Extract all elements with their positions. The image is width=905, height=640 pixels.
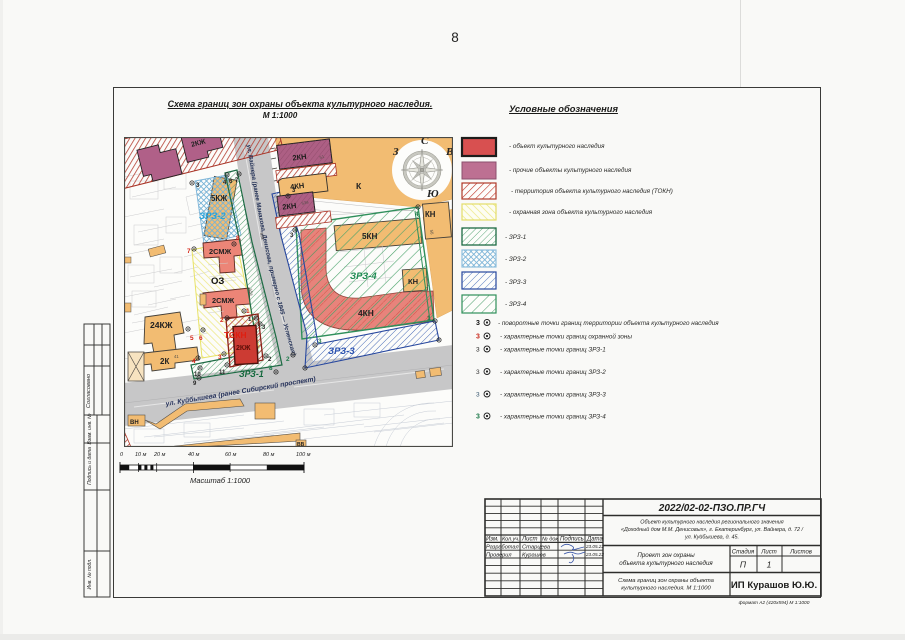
svg-text:8: 8	[236, 235, 240, 242]
svg-text:Ю: Ю	[426, 188, 439, 200]
svg-text:- характерные точки границ ЗР: - характерные точки границ ЗРЗ-2	[500, 369, 606, 376]
svg-text:23.05.22: 23.05.22	[585, 552, 604, 557]
svg-text:Кол.уч.: Кол.уч.	[502, 537, 520, 543]
svg-text:Разработал: Разработал	[486, 545, 519, 551]
svg-text:3: 3	[476, 392, 480, 399]
svg-text:ВН: ВН	[130, 420, 139, 426]
svg-text:2022/02-02-ПЗО.ПР.ГЧ: 2022/02-02-ПЗО.ПР.ГЧ	[658, 503, 766, 514]
svg-text:Лист: Лист	[521, 537, 537, 543]
svg-text:7: 7	[187, 248, 191, 255]
svg-text:- характерные точки границ ЗР: - характерные точки границ ЗРЗ-4	[500, 414, 606, 421]
svg-text:3: 3	[476, 334, 480, 341]
svg-text:2К: 2К	[160, 357, 169, 366]
svg-text:2: 2	[286, 356, 290, 363]
svg-text:24КЖ: 24КЖ	[150, 320, 173, 330]
svg-text:3: 3	[476, 347, 480, 354]
svg-text:формат А2 (420х594) М 1:1000: формат А2 (420х594) М 1:1000	[739, 600, 810, 606]
svg-text:3: 3	[318, 338, 322, 345]
svg-text:3: 3	[476, 414, 480, 421]
svg-text:3: 3	[218, 354, 222, 361]
svg-text:4КН: 4КН	[358, 308, 374, 318]
svg-text:КН: КН	[408, 277, 418, 286]
svg-text:культурного наследия. М 1:1000: культурного наследия. М 1:1000	[621, 586, 711, 592]
svg-text:1: 1	[427, 315, 431, 322]
svg-text:10: 10	[194, 372, 201, 378]
svg-text:Проект зон охраны: Проект зон охраны	[637, 552, 695, 559]
svg-text:В: В	[445, 146, 453, 158]
svg-text:1: 1	[246, 308, 250, 315]
svg-text:ЗРЗ-4: ЗРЗ-4	[350, 271, 377, 282]
svg-text:3: 3	[476, 369, 480, 376]
svg-text:Дата: Дата	[586, 537, 603, 543]
svg-text:ОЗ: ОЗ	[211, 276, 224, 287]
svg-text:3: 3	[476, 320, 480, 327]
svg-text:- характерные точки границ ох: - характерные точки границ охранной зоны	[500, 333, 632, 341]
svg-text:ИП Курашов Ю.Ю.: ИП Курашов Ю.Ю.	[731, 580, 817, 591]
svg-text:К: К	[356, 181, 362, 191]
svg-text:ЗРЗ-2: ЗРЗ-2	[199, 211, 226, 222]
svg-text:- характерные точки границ ЗР: - характерные точки границ ЗРЗ-3	[500, 392, 606, 399]
svg-text:Курашов: Курашов	[522, 552, 546, 558]
svg-text:4: 4	[415, 211, 419, 218]
svg-text:1: 1	[767, 560, 772, 570]
svg-text:5КН: 5КН	[362, 232, 378, 241]
svg-text:Подпись и дата: Подпись и дата	[87, 447, 93, 485]
svg-text:Инв. № подл.: Инв. № подл.	[87, 558, 93, 589]
svg-text:- характерные точки границ ЗР: - характерные точки границ ЗРЗ-1	[500, 347, 606, 354]
svg-text:№ док.: № док.	[542, 537, 559, 543]
svg-text:КН: КН	[425, 210, 436, 219]
svg-text:З: З	[392, 146, 399, 158]
svg-text:Старцева: Старцева	[522, 545, 551, 551]
svg-text:5: 5	[190, 335, 194, 342]
svg-text:«Доходный дом М.М. Денисовых»,: «Доходный дом М.М. Денисовых», г. Екатер…	[621, 526, 803, 533]
svg-text:23.05.22: 23.05.22	[585, 544, 604, 549]
svg-text:2КЖ: 2КЖ	[236, 345, 251, 352]
svg-text:объекта культурного наследия: объекта культурного наследия	[619, 560, 713, 567]
svg-text:ЗРЗ-3: ЗРЗ-3	[328, 346, 355, 357]
svg-text:Изм.: Изм.	[486, 537, 499, 543]
svg-text:6: 6	[199, 335, 203, 342]
svg-text:11: 11	[219, 370, 226, 376]
svg-text:2КН: 2КН	[292, 152, 307, 163]
svg-text:Стадия: Стадия	[732, 550, 755, 556]
svg-text:П: П	[740, 560, 747, 570]
svg-text:2СМЖ: 2СМЖ	[212, 296, 235, 305]
svg-text:Проверил: Проверил	[486, 552, 512, 558]
svg-text:Объект культурного наследия ре: Объект культурного наследия региональног…	[640, 520, 784, 526]
svg-text:2КН: 2КН	[282, 201, 297, 212]
svg-text:2: 2	[220, 317, 224, 324]
svg-text:Согласовано: Согласовано	[86, 374, 92, 408]
svg-text:8: 8	[269, 365, 273, 372]
svg-text:5КЖ: 5КЖ	[211, 194, 228, 203]
svg-text:Подпись: Подпись	[560, 537, 584, 543]
svg-text:ТОКН: ТОКН	[224, 330, 247, 340]
svg-text:Лист: Лист	[760, 550, 776, 556]
svg-text:41: 41	[174, 354, 179, 359]
svg-text:ул. Куйбышева, д. 45.: ул. Куйбышева, д. 45.	[684, 534, 739, 541]
svg-text:2СМЖ: 2СМЖ	[209, 247, 232, 256]
svg-text:Взам. инв. №: Взам. инв. №	[87, 413, 93, 445]
svg-text:Листов: Листов	[789, 550, 812, 556]
svg-text:С: С	[421, 137, 429, 147]
svg-text:4: 4	[192, 358, 196, 365]
svg-text:Схема границ зон охраны объект: Схема границ зон охраны объекта	[618, 578, 714, 584]
svg-text:- поворотные точки границ тер: - поворотные точки границ территории объ…	[498, 319, 719, 327]
svg-text:ЗРЗ-1: ЗРЗ-1	[239, 369, 264, 379]
